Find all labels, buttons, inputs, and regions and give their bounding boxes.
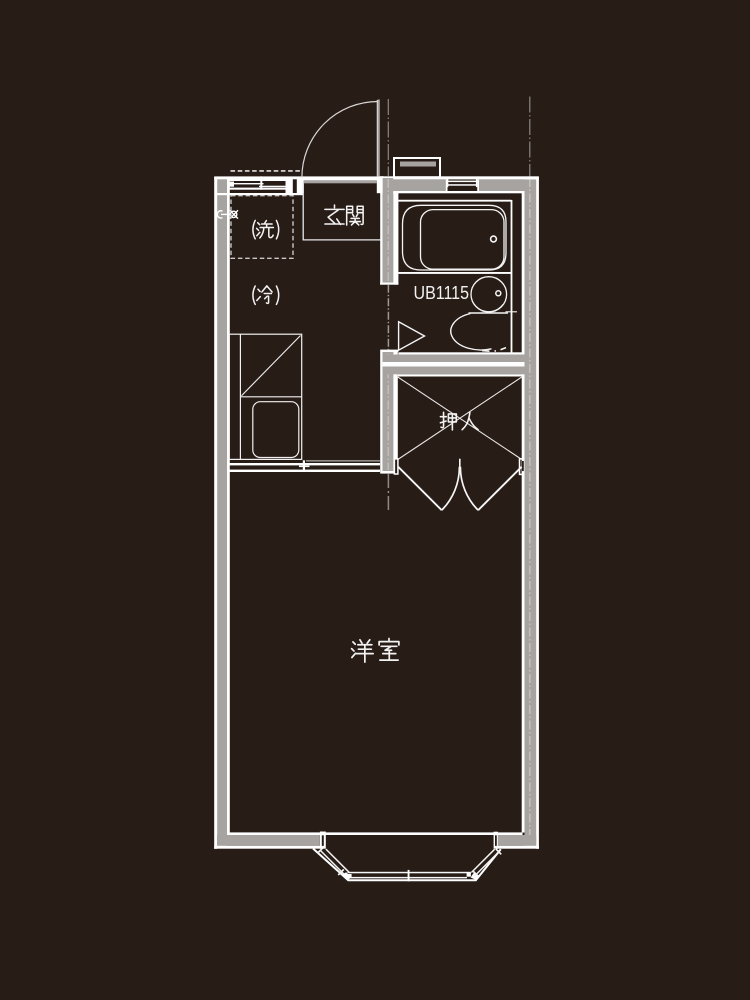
svg-text:UB1115: UB1115: [414, 283, 470, 303]
